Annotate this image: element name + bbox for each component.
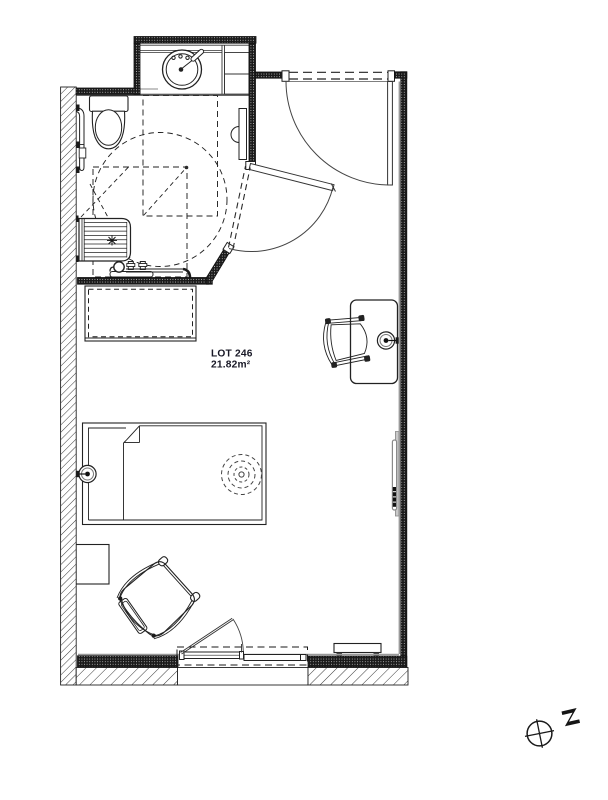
svg-text:LOT 246: LOT 246: [211, 349, 253, 360]
svg-text:21.82m²: 21.82m²: [211, 360, 251, 371]
